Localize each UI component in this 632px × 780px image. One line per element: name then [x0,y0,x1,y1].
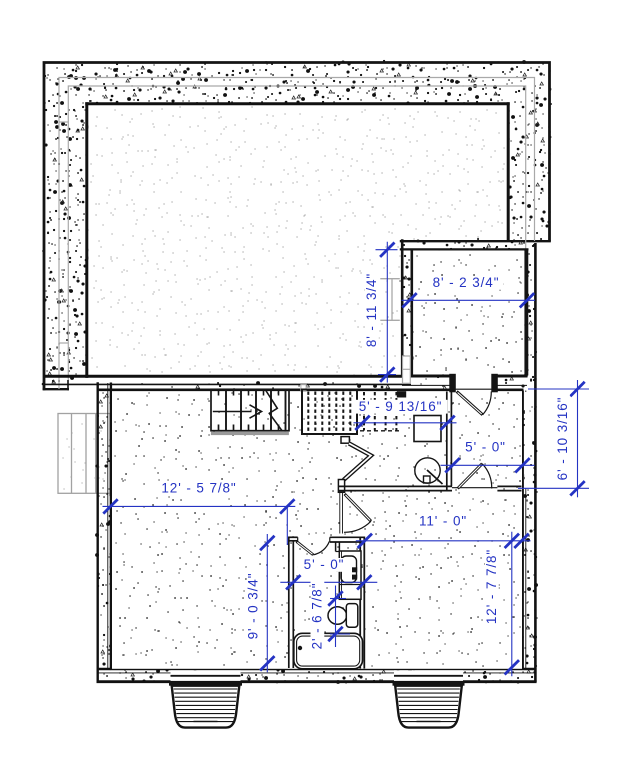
svg-text:12' - 7 7/8": 12' - 7 7/8" [484,549,499,624]
svg-text:8' - 2 3/4": 8' - 2 3/4" [433,275,500,290]
svg-text:9' - 0 3/4": 9' - 0 3/4" [246,573,261,640]
svg-text:5' - 9 13/16": 5' - 9 13/16" [359,399,443,414]
svg-text:2' - 6 7/8": 2' - 6 7/8" [310,583,325,650]
svg-text:11' - 0": 11' - 0" [419,514,467,529]
svg-text:5' - 0": 5' - 0" [304,557,345,572]
svg-text:6' - 10 3/16": 6' - 10 3/16" [555,397,570,481]
svg-text:12' - 5 7/8": 12' - 5 7/8" [161,481,236,496]
svg-text:5' - 0": 5' - 0" [465,440,506,455]
svg-text:8' - 11 3/4": 8' - 11 3/4" [364,273,379,347]
